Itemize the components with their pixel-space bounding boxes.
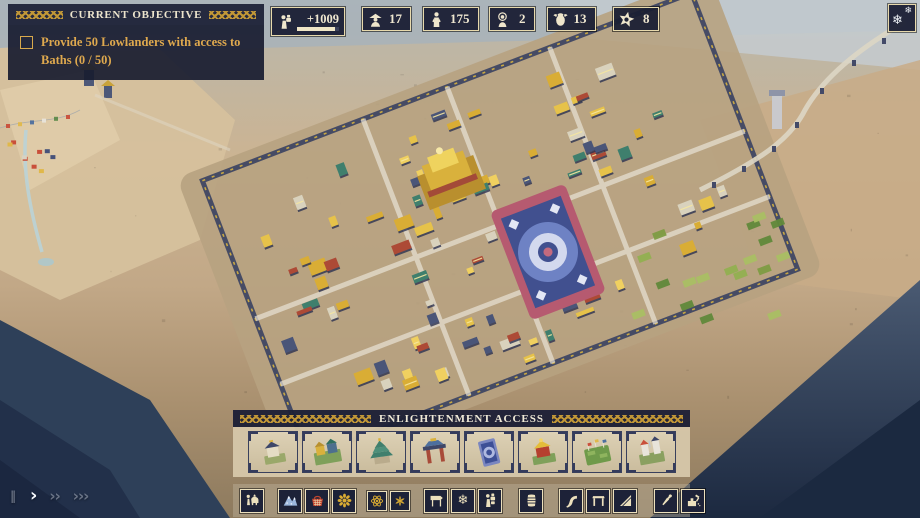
gold-chain-ornament bbox=[209, 11, 256, 19]
basket-icon bbox=[309, 492, 326, 509]
pause-button[interactable]: ‖ bbox=[10, 486, 17, 506]
porter-progress-fill bbox=[297, 27, 335, 31]
atom-overlay-button[interactable] bbox=[367, 491, 387, 511]
snowflake-icon: ❄ bbox=[892, 13, 903, 28]
build-slot-small-shrine[interactable] bbox=[248, 431, 298, 473]
monastery-complex-thumbnail bbox=[306, 435, 348, 469]
bottom-toolbar: ❄ bbox=[233, 484, 690, 517]
atom-icon bbox=[370, 494, 384, 508]
resource-yaks[interactable]: 13 bbox=[547, 7, 596, 31]
speed-controls: ‖ › ›› ››› bbox=[10, 486, 88, 506]
objective-panel: CURRENT OBJECTIVE Provide 50 Lowlanders … bbox=[8, 4, 264, 80]
gate-icon bbox=[590, 492, 607, 509]
gold-chain-ornament bbox=[552, 415, 683, 423]
worker-count: 175 bbox=[450, 11, 470, 27]
gold-chain-ornament bbox=[240, 415, 371, 423]
snowflake-overlay-icon: ❄ bbox=[458, 494, 469, 507]
objective-checkbox bbox=[20, 36, 33, 49]
resource-lowlanders[interactable]: 17 bbox=[362, 7, 411, 31]
lotus-overlay-button[interactable] bbox=[390, 491, 410, 511]
barrel-icon bbox=[523, 492, 540, 509]
build-slot-prayer-garden[interactable] bbox=[572, 431, 622, 473]
pipette-icon bbox=[658, 492, 675, 509]
star-icon bbox=[618, 11, 635, 28]
build-slot-stupa-towers[interactable] bbox=[626, 431, 676, 473]
lowlander-icon bbox=[367, 11, 384, 28]
mandala-button[interactable] bbox=[332, 489, 356, 513]
gate-button[interactable] bbox=[586, 489, 610, 513]
demolish-icon bbox=[685, 492, 702, 509]
porter-count: +1009 bbox=[307, 13, 339, 25]
lotus-icon bbox=[393, 494, 407, 508]
build-slot-golden-shrine[interactable] bbox=[518, 431, 568, 473]
porter-goods-icon bbox=[482, 492, 499, 509]
fast-forward-button[interactable]: ›› bbox=[49, 486, 59, 506]
yak-icon bbox=[552, 11, 569, 28]
yak-count: 13 bbox=[574, 11, 587, 27]
prestige-count: 8 bbox=[643, 11, 650, 27]
pipette-button[interactable] bbox=[654, 489, 678, 513]
resource-workers[interactable]: 175 bbox=[423, 7, 479, 31]
signpost-icon bbox=[428, 492, 445, 509]
road-button[interactable] bbox=[559, 489, 583, 513]
worker-icon bbox=[428, 11, 445, 28]
stupa-towers-thumbnail bbox=[630, 435, 672, 469]
barrel-button[interactable] bbox=[519, 489, 543, 513]
demolish-button[interactable] bbox=[681, 489, 705, 513]
resource-porters[interactable]: +1009 bbox=[271, 7, 345, 36]
small-shrine-thumbnail bbox=[252, 435, 294, 469]
yak-caravan-icon bbox=[244, 492, 261, 509]
porter-icon bbox=[277, 13, 294, 30]
resource-monks[interactable]: 2 bbox=[489, 7, 535, 31]
build-slot-monastery-complex[interactable] bbox=[302, 431, 352, 473]
season-button[interactable]: ❄ ❄ bbox=[888, 4, 916, 32]
build-slot-pagoda-temple[interactable] bbox=[356, 431, 406, 473]
snowflake-overlay-button[interactable]: ❄ bbox=[451, 489, 475, 513]
resource-prestige[interactable]: 8 bbox=[613, 7, 659, 31]
signpost-button[interactable] bbox=[424, 489, 448, 513]
lowlander-count: 17 bbox=[389, 11, 402, 27]
basket-button[interactable] bbox=[305, 489, 329, 513]
prayer-garden-thumbnail bbox=[576, 435, 618, 469]
resource-bar: +1009 17 175 2 13 bbox=[271, 7, 659, 36]
pagoda-temple-thumbnail bbox=[360, 435, 402, 469]
building-slot-row bbox=[233, 427, 690, 477]
avalanche-button[interactable] bbox=[278, 489, 302, 513]
mandala-icon bbox=[336, 492, 353, 509]
road-icon bbox=[563, 492, 580, 509]
objective-title: CURRENT OBJECTIVE bbox=[70, 9, 202, 21]
ramp-button[interactable] bbox=[613, 489, 637, 513]
ramp-icon bbox=[617, 492, 634, 509]
monk-icon bbox=[494, 11, 511, 28]
game-screen: CURRENT OBJECTIVE Provide 50 Lowlanders … bbox=[0, 0, 920, 518]
objective-task-text: Provide 50 Lowlanders with access to Bat… bbox=[41, 34, 254, 69]
gold-chain-ornament bbox=[16, 11, 63, 19]
golden-shrine-thumbnail bbox=[522, 435, 564, 469]
mandala-ground-thumbnail bbox=[468, 435, 510, 469]
porter-goods-button[interactable] bbox=[478, 489, 502, 513]
build-category-title: ENLIGHTENMENT ACCESS bbox=[379, 413, 544, 425]
fastest-forward-button[interactable]: ››› bbox=[73, 486, 89, 506]
monk-count: 2 bbox=[519, 11, 526, 27]
avalanche-icon bbox=[282, 492, 299, 509]
build-slot-mandala-ground[interactable] bbox=[464, 431, 514, 473]
yak-caravan-button[interactable] bbox=[240, 489, 264, 513]
play-button[interactable]: › bbox=[30, 486, 36, 506]
porter-progress-bar bbox=[297, 27, 339, 31]
snowflake-icon: ❄ bbox=[904, 6, 912, 16]
build-slot-gate-shrine[interactable] bbox=[410, 431, 460, 473]
build-category-banner: ENLIGHTENMENT ACCESS bbox=[233, 410, 690, 427]
gate-shrine-thumbnail bbox=[414, 435, 456, 469]
